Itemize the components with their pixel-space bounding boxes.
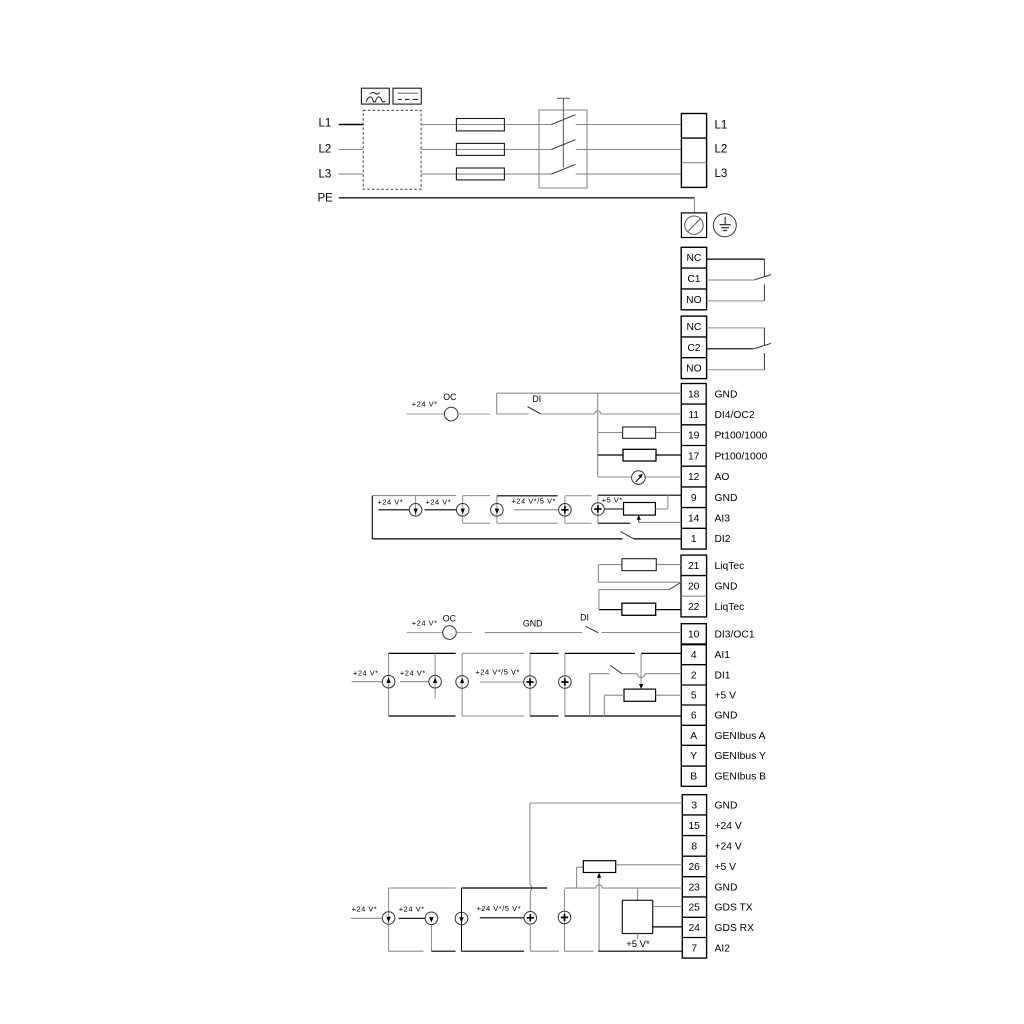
svg-text:L2: L2 bbox=[715, 144, 728, 156]
svg-text:+24 V*: +24 V* bbox=[412, 618, 438, 627]
svg-text:+24 V: +24 V bbox=[715, 821, 742, 832]
svg-text:OC: OC bbox=[443, 613, 457, 623]
svg-text:+24 V*: +24 V* bbox=[378, 497, 404, 506]
svg-text:GENIbus Y: GENIbus Y bbox=[715, 751, 766, 762]
svg-text:+5 V: +5 V bbox=[715, 862, 737, 873]
svg-text:2: 2 bbox=[691, 670, 697, 681]
svg-text:GND: GND bbox=[715, 581, 738, 592]
svg-text:15: 15 bbox=[688, 821, 700, 832]
svg-text:14: 14 bbox=[688, 514, 700, 525]
svg-text:AI1: AI1 bbox=[715, 650, 731, 661]
svg-text:+24 V*: +24 V* bbox=[412, 400, 438, 409]
svg-text:L3: L3 bbox=[715, 168, 728, 180]
svg-text:A: A bbox=[690, 731, 697, 742]
svg-text:8: 8 bbox=[691, 841, 697, 852]
svg-text:+24 V: +24 V bbox=[715, 841, 742, 852]
svg-text:LiqTec: LiqTec bbox=[715, 561, 745, 572]
svg-text:17: 17 bbox=[688, 451, 700, 462]
svg-text:12: 12 bbox=[688, 472, 700, 483]
svg-text:OC: OC bbox=[443, 392, 457, 402]
svg-text:+24 V*/5 V*: +24 V*/5 V* bbox=[475, 668, 520, 677]
svg-text:DI: DI bbox=[580, 612, 589, 622]
svg-text:GND: GND bbox=[715, 493, 738, 504]
svg-text:24: 24 bbox=[688, 923, 700, 934]
svg-text:3: 3 bbox=[691, 800, 697, 811]
svg-text:AI3: AI3 bbox=[715, 514, 731, 525]
svg-text:GDS RX: GDS RX bbox=[715, 923, 755, 934]
svg-text:+24 V*/5 V*: +24 V*/5 V* bbox=[477, 904, 522, 913]
svg-text:B: B bbox=[690, 772, 697, 783]
svg-text:Pt100/1000: Pt100/1000 bbox=[715, 451, 768, 462]
svg-text:L1: L1 bbox=[319, 118, 332, 130]
svg-text:11: 11 bbox=[688, 410, 699, 421]
svg-text:DI4/OC2: DI4/OC2 bbox=[715, 410, 755, 421]
svg-text:GND: GND bbox=[715, 800, 738, 811]
svg-text:21: 21 bbox=[688, 561, 700, 572]
svg-text:L3: L3 bbox=[319, 169, 332, 181]
svg-text:DI2: DI2 bbox=[715, 534, 731, 545]
svg-text:AI2: AI2 bbox=[715, 943, 731, 954]
svg-text:GDS TX: GDS TX bbox=[715, 903, 753, 914]
svg-text:DI: DI bbox=[532, 394, 541, 404]
svg-text:PE: PE bbox=[318, 193, 334, 205]
svg-text:+24 V*: +24 V* bbox=[399, 905, 425, 914]
svg-text:18: 18 bbox=[688, 389, 700, 400]
svg-text:6: 6 bbox=[691, 711, 697, 722]
svg-text:NC: NC bbox=[686, 253, 701, 264]
svg-text:23: 23 bbox=[688, 882, 700, 893]
svg-text:+24 V*: +24 V* bbox=[400, 669, 426, 678]
svg-text:+5 V*: +5 V* bbox=[626, 939, 650, 950]
svg-text:26: 26 bbox=[688, 862, 700, 873]
svg-text:7: 7 bbox=[691, 943, 697, 954]
svg-text:NC: NC bbox=[686, 322, 701, 333]
svg-text:GND: GND bbox=[715, 389, 738, 400]
svg-text:GND: GND bbox=[523, 618, 543, 628]
svg-text:GND: GND bbox=[715, 882, 738, 893]
svg-text:9: 9 bbox=[691, 493, 697, 504]
svg-text:L1: L1 bbox=[715, 120, 728, 132]
svg-text:Pt100/1000: Pt100/1000 bbox=[715, 431, 768, 442]
svg-text:22: 22 bbox=[688, 602, 700, 613]
svg-text:NO: NO bbox=[686, 364, 701, 375]
svg-text:DI1: DI1 bbox=[715, 670, 731, 681]
svg-text:GENIbus B: GENIbus B bbox=[715, 772, 767, 783]
svg-text:+5 V: +5 V bbox=[715, 691, 737, 702]
svg-text:4: 4 bbox=[691, 650, 697, 661]
svg-text:+24 V*: +24 V* bbox=[426, 497, 452, 506]
svg-text:+24 V*/5 V*: +24 V*/5 V* bbox=[511, 497, 556, 506]
svg-text:Y: Y bbox=[690, 751, 697, 762]
svg-text:L2: L2 bbox=[319, 144, 332, 156]
svg-text:GND: GND bbox=[715, 711, 738, 722]
svg-text:C1: C1 bbox=[687, 274, 700, 285]
svg-text:20: 20 bbox=[688, 581, 700, 592]
svg-text:1: 1 bbox=[691, 534, 697, 545]
svg-text:AO: AO bbox=[715, 472, 730, 483]
svg-text:25: 25 bbox=[688, 903, 700, 914]
svg-text:C2: C2 bbox=[687, 343, 700, 354]
svg-text:+24 V*: +24 V* bbox=[352, 905, 378, 914]
svg-text:DI3/OC1: DI3/OC1 bbox=[715, 629, 755, 640]
svg-text:LiqTec: LiqTec bbox=[715, 602, 745, 613]
svg-text:+5 V*: +5 V* bbox=[602, 495, 623, 504]
svg-text:GENIbus A: GENIbus A bbox=[715, 731, 766, 742]
svg-text:19: 19 bbox=[688, 431, 700, 442]
svg-text:+24 V*: +24 V* bbox=[353, 669, 379, 678]
svg-text:5: 5 bbox=[691, 691, 697, 702]
svg-text:10: 10 bbox=[688, 629, 700, 640]
svg-text:NO: NO bbox=[686, 295, 701, 306]
